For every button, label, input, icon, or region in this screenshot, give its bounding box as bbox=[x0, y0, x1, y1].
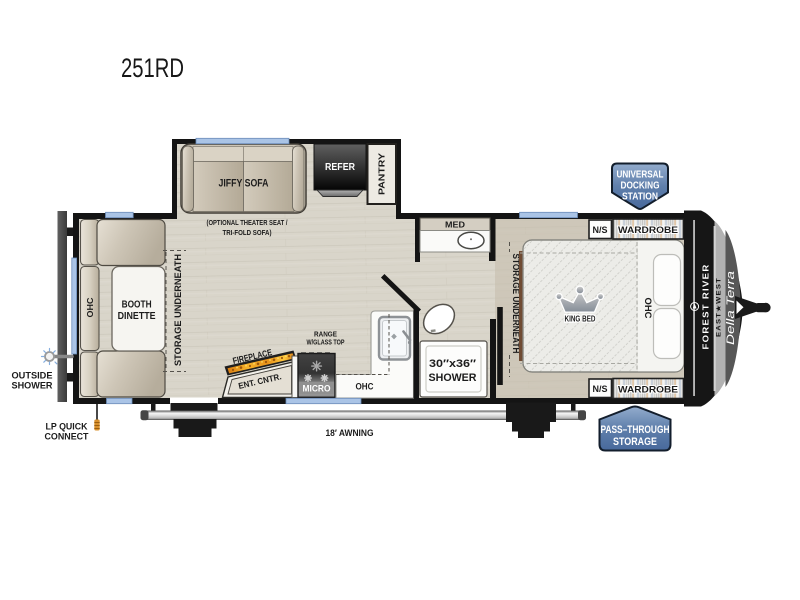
svg-text:OHC: OHC bbox=[85, 298, 95, 318]
svg-text:UNIVERSAL: UNIVERSAL bbox=[617, 170, 664, 181]
svg-text:DINETTE: DINETTE bbox=[118, 311, 156, 322]
svg-text:DOCKING: DOCKING bbox=[621, 181, 660, 192]
svg-text:BOOTH: BOOTH bbox=[122, 300, 152, 311]
svg-text:PANTRY: PANTRY bbox=[377, 153, 387, 195]
svg-text:OHC: OHC bbox=[356, 382, 374, 392]
svg-text:STORAGE UNDERNEATH: STORAGE UNDERNEATH bbox=[173, 254, 183, 366]
svg-text:W/GLASS TOP: W/GLASS TOP bbox=[307, 338, 345, 347]
svg-text:CONNECT: CONNECT bbox=[45, 432, 89, 443]
svg-text:SHOWER: SHOWER bbox=[12, 381, 53, 392]
svg-text:STORAGE: STORAGE bbox=[613, 436, 657, 448]
svg-text:REFER: REFER bbox=[325, 162, 356, 173]
svg-text:(OPTIONAL THEATER SEAT /: (OPTIONAL THEATER SEAT / bbox=[207, 218, 289, 227]
svg-text:N/S: N/S bbox=[593, 384, 608, 395]
svg-text:TRI-FOLD SOFA): TRI-FOLD SOFA) bbox=[223, 228, 272, 237]
svg-text:EAST★WEST: EAST★WEST bbox=[716, 277, 723, 337]
svg-text:OHC: OHC bbox=[643, 298, 653, 320]
svg-text:30″x36″: 30″x36″ bbox=[429, 358, 477, 370]
svg-text:SHOWER: SHOWER bbox=[429, 372, 477, 384]
svg-text:WARDROBE: WARDROBE bbox=[618, 385, 678, 396]
svg-text:MED: MED bbox=[445, 220, 465, 230]
svg-text:PASS–THROUGH: PASS–THROUGH bbox=[601, 424, 670, 436]
svg-text:251RD: 251RD bbox=[121, 53, 184, 83]
svg-text:WARDROBE: WARDROBE bbox=[618, 225, 678, 236]
svg-text:18′ AWNING: 18′ AWNING bbox=[326, 428, 374, 439]
svg-text:FOREST RIVER: FOREST RIVER bbox=[701, 264, 711, 350]
svg-text:N/S: N/S bbox=[593, 225, 608, 236]
svg-text:JIFFY SOFA: JIFFY SOFA bbox=[219, 178, 269, 190]
svg-text:KING BED: KING BED bbox=[565, 314, 596, 324]
svg-text:STATION: STATION bbox=[622, 192, 658, 203]
svg-text:MICRO: MICRO bbox=[303, 384, 331, 394]
